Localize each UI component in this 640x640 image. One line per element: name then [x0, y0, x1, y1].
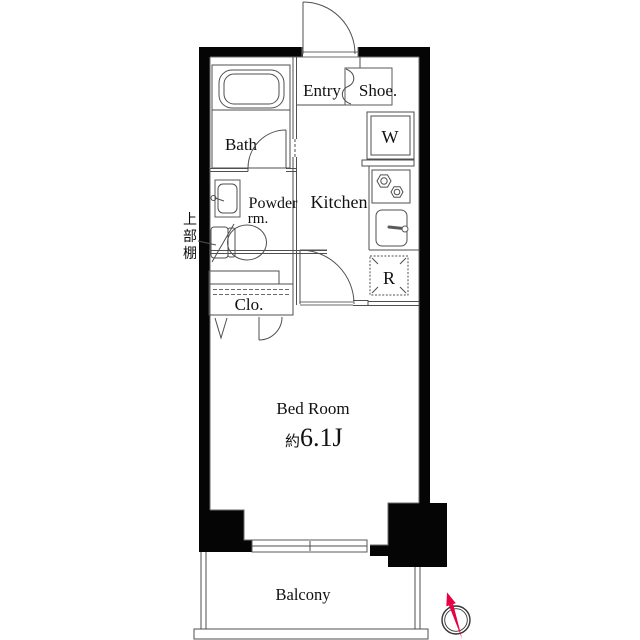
bedroom-label: Bed Room	[276, 399, 349, 418]
size-prefix: 約	[285, 433, 300, 450]
bath-label: Bath	[225, 135, 258, 154]
balcony-slab	[194, 629, 428, 639]
closet-label: Clo.	[235, 295, 264, 314]
kitchen: W R Kitchen	[311, 112, 419, 295]
washer-label: W	[382, 127, 399, 147]
kitchen-sink	[376, 210, 408, 246]
closet-door	[259, 317, 282, 340]
floor-plan-canvas: Entry Shoe. Bath	[0, 0, 640, 640]
powder-label-line2: rm.	[248, 211, 268, 227]
closet-door-mark	[215, 318, 227, 338]
svg-text:部: 部	[183, 229, 197, 245]
stove	[372, 170, 410, 203]
entry-door	[302, 2, 358, 57]
toilet	[211, 224, 267, 262]
powder-room: Powder rm.	[211, 180, 298, 262]
sliding-window	[252, 540, 367, 552]
bottom-right-pillar	[388, 503, 447, 567]
balcony-label: Balcony	[276, 585, 332, 604]
svg-text:棚: 棚	[183, 246, 197, 262]
floor-plan-page: Entry Shoe. Bath	[0, 0, 640, 640]
washing-machine-box: W	[367, 112, 414, 159]
north-compass-icon	[442, 591, 470, 640]
bath-room: Bath	[212, 65, 290, 168]
closet: Clo.	[209, 271, 293, 340]
kitchen-label: Kitchen	[311, 192, 368, 212]
shoe-label: Shoe.	[359, 81, 397, 100]
refrigerator-box: R	[370, 256, 408, 295]
powder-label-line1: Powder	[249, 195, 299, 212]
upper-shelf-mark	[212, 224, 234, 262]
bedroom-door	[300, 250, 419, 306]
size-value: 6.1J	[300, 423, 343, 452]
entry-label: Entry	[303, 81, 341, 100]
bedroom: Bed Room 約 6.1J	[276, 399, 349, 452]
bottom-left-pillar	[199, 510, 253, 552]
entry-area: Entry Shoe.	[296, 57, 397, 105]
hanger-pipe	[213, 290, 289, 295]
svg-text:上: 上	[183, 212, 197, 228]
washbasin	[211, 180, 240, 217]
counter-shelf	[362, 160, 414, 166]
bathtub	[219, 70, 284, 108]
fridge-label: R	[383, 268, 395, 288]
